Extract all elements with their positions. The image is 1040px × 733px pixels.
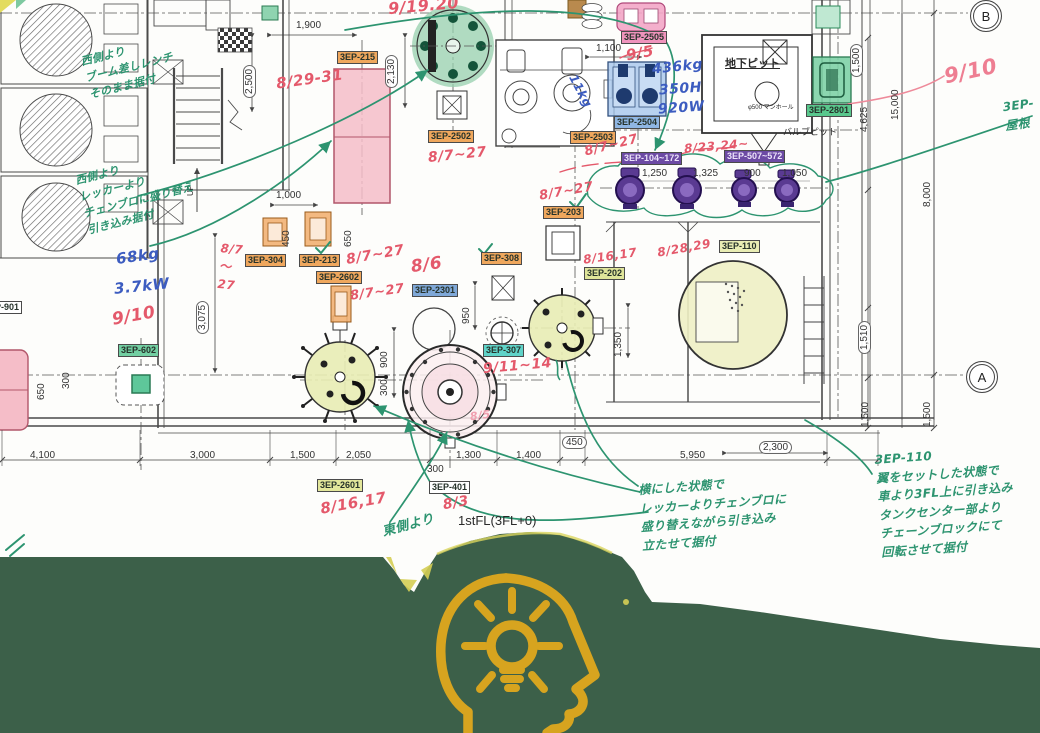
small-units-top	[262, 0, 840, 31]
staircase	[174, 28, 252, 212]
scanned-blueprint: 3EP-2153EP-25023EP-25033EP-25043EP-25053…	[0, 0, 1040, 733]
cad-linework	[0, 0, 1040, 733]
fan-units	[1, 0, 183, 258]
agitator-left	[292, 316, 388, 423]
tank-3ep-401	[403, 308, 506, 448]
blue-unit	[608, 62, 666, 116]
piping-skid	[496, 40, 614, 146]
green-unit-2801	[813, 57, 851, 103]
tank-3ep-215	[334, 69, 390, 203]
agitator-202	[522, 288, 603, 380]
underground-pit	[702, 35, 812, 165]
purple-pumps	[616, 168, 810, 209]
